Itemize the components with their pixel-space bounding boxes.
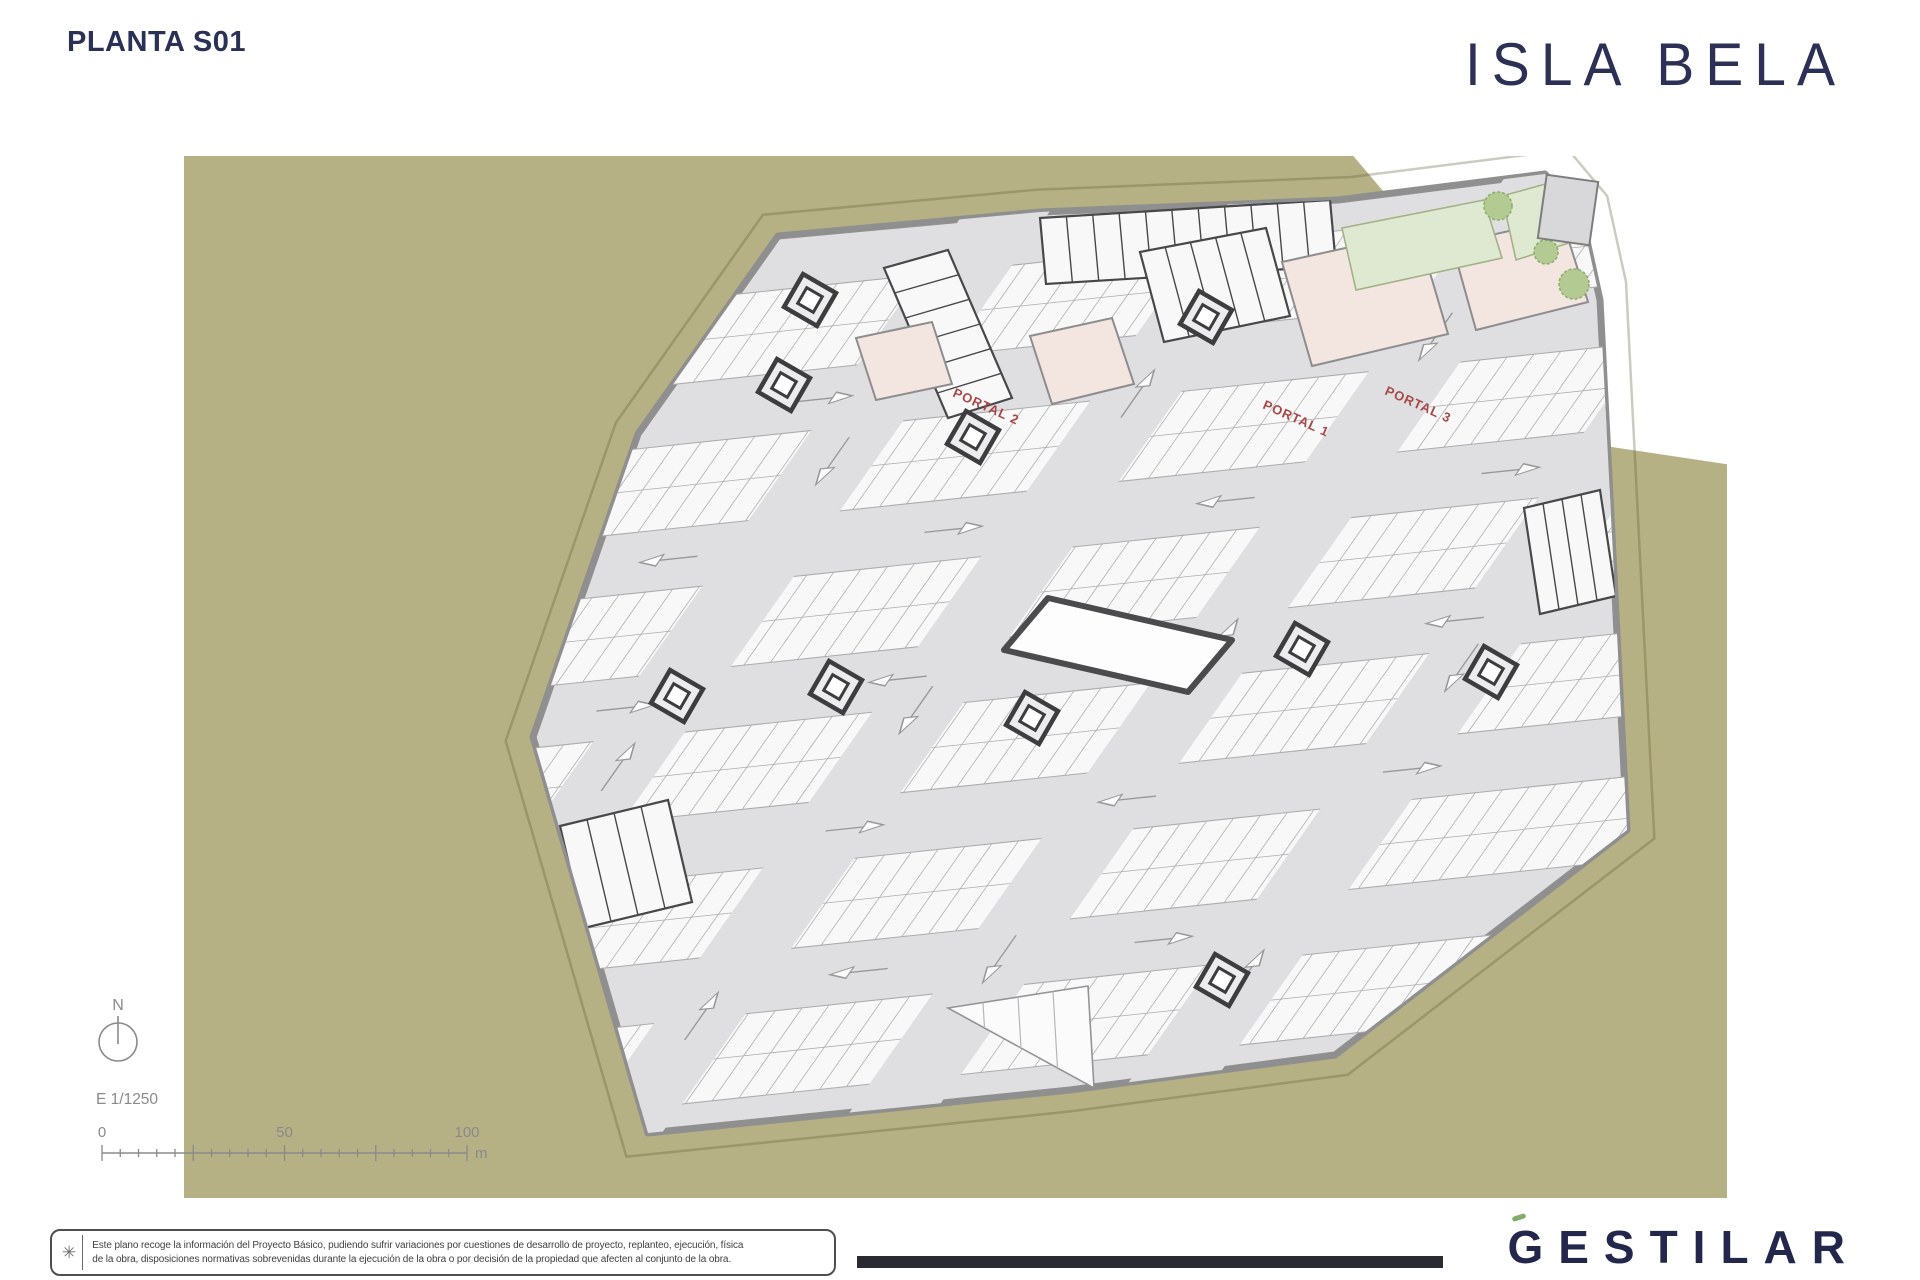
- scale-unit-label: m: [475, 1145, 488, 1162]
- storage-rooms: [1524, 490, 1616, 614]
- gear-icon: ✳: [60, 1243, 82, 1263]
- divider: [82, 1235, 83, 1270]
- tree: [1484, 192, 1512, 220]
- north-indicator: NE 1/1250: [96, 997, 158, 1108]
- tree: [1559, 269, 1589, 299]
- gestilar-logo: GESTILAR: [1507, 1220, 1860, 1274]
- floor-plan: PORTAL 2PORTAL 1PORTAL 3NE 1/1250050100m: [0, 0, 1920, 1280]
- disclaimer-box: ✳ Este plano recoge la información del P…: [50, 1229, 836, 1276]
- scale-label: E 1/1250: [96, 1091, 158, 1108]
- footer-bar: [857, 1256, 1443, 1268]
- tree: [1534, 240, 1558, 264]
- disclaimer-line-1: Este plano recoge la información del Pro…: [92, 1239, 743, 1253]
- disclaimer-line-2: de la obra, disposiciones normativas sob…: [92, 1253, 743, 1267]
- scale-tick-label: 50: [276, 1124, 293, 1141]
- plan-sheet: PLANTA S01 ISLA BELA PORTAL 2PORTAL 1POR…: [0, 0, 1920, 1280]
- scale-tick-label: 100: [454, 1124, 479, 1141]
- gestilar-label: GESTILAR: [1507, 1221, 1860, 1273]
- scale-tick-label: 0: [98, 1124, 106, 1141]
- north-label: N: [112, 997, 124, 1014]
- disclaimer-text: Este plano recoge la información del Pro…: [92, 1239, 743, 1266]
- entrance-block: [1538, 175, 1598, 246]
